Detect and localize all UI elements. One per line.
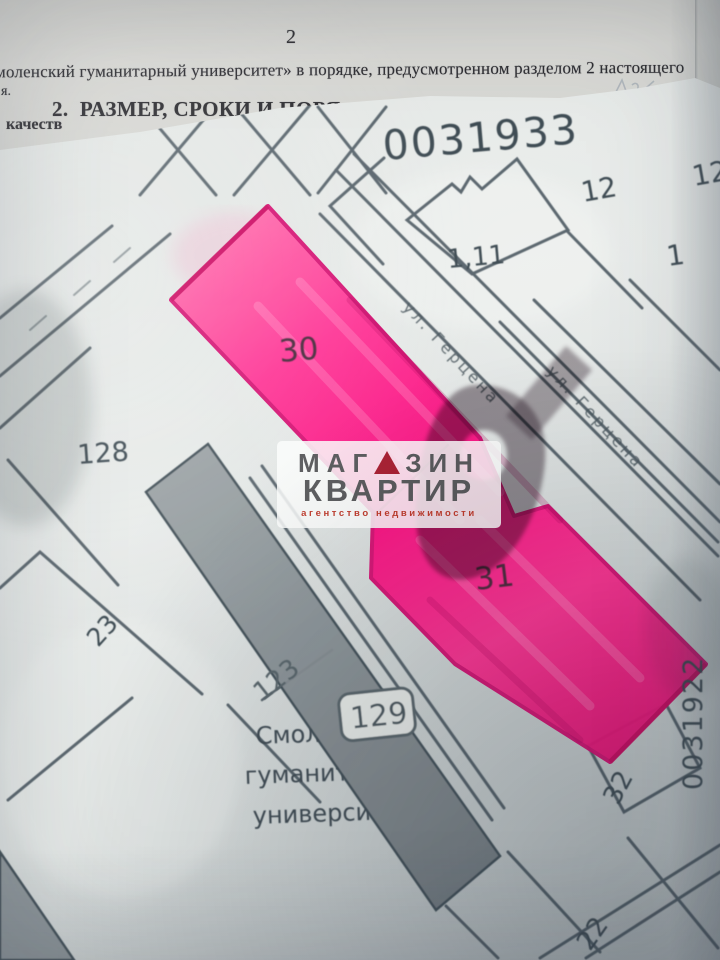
quarter-number-top: 0031933 [381, 105, 581, 170]
photo-of-cadastral-plan: 2 моленский гуманитарный университет» в … [0, 0, 720, 960]
parcel-label-12b: 12 [689, 154, 720, 193]
parcel-label-1: 1 [664, 238, 686, 273]
document-left-fragment: качеств [6, 116, 62, 134]
parcel-label-12a: 12 [578, 170, 619, 209]
bottom-right-street-lines [540, 838, 720, 958]
parcel-label-129-box: 129 [338, 687, 417, 741]
document-body-line: моленский гуманитарный университет» в по… [0, 58, 684, 83]
agency-name-line1: МАГ ЗИН [298, 451, 480, 474]
document-margin-mark: я. [1, 84, 11, 100]
agency-tagline: агентство недвижимости [301, 508, 477, 519]
parcel-label-22: 22 [571, 912, 615, 956]
parcel-label-30: 30 [278, 331, 320, 370]
parcel-label-129: 129 [349, 696, 410, 737]
agency-name-part2: ЗИН [405, 452, 480, 474]
triangle-letter-icon [374, 451, 400, 474]
parcel-label-1-11: 1,11 [446, 240, 506, 275]
document-page-number: 2 [286, 26, 296, 49]
agency-name-part1: МАГ [298, 452, 374, 474]
agency-name-line2: КВАРТИР [303, 476, 475, 506]
watermark-letter-faint-left [0, 290, 92, 526]
agency-watermark: МАГ ЗИН КВАРТИР агентство недвижимости [277, 441, 501, 528]
